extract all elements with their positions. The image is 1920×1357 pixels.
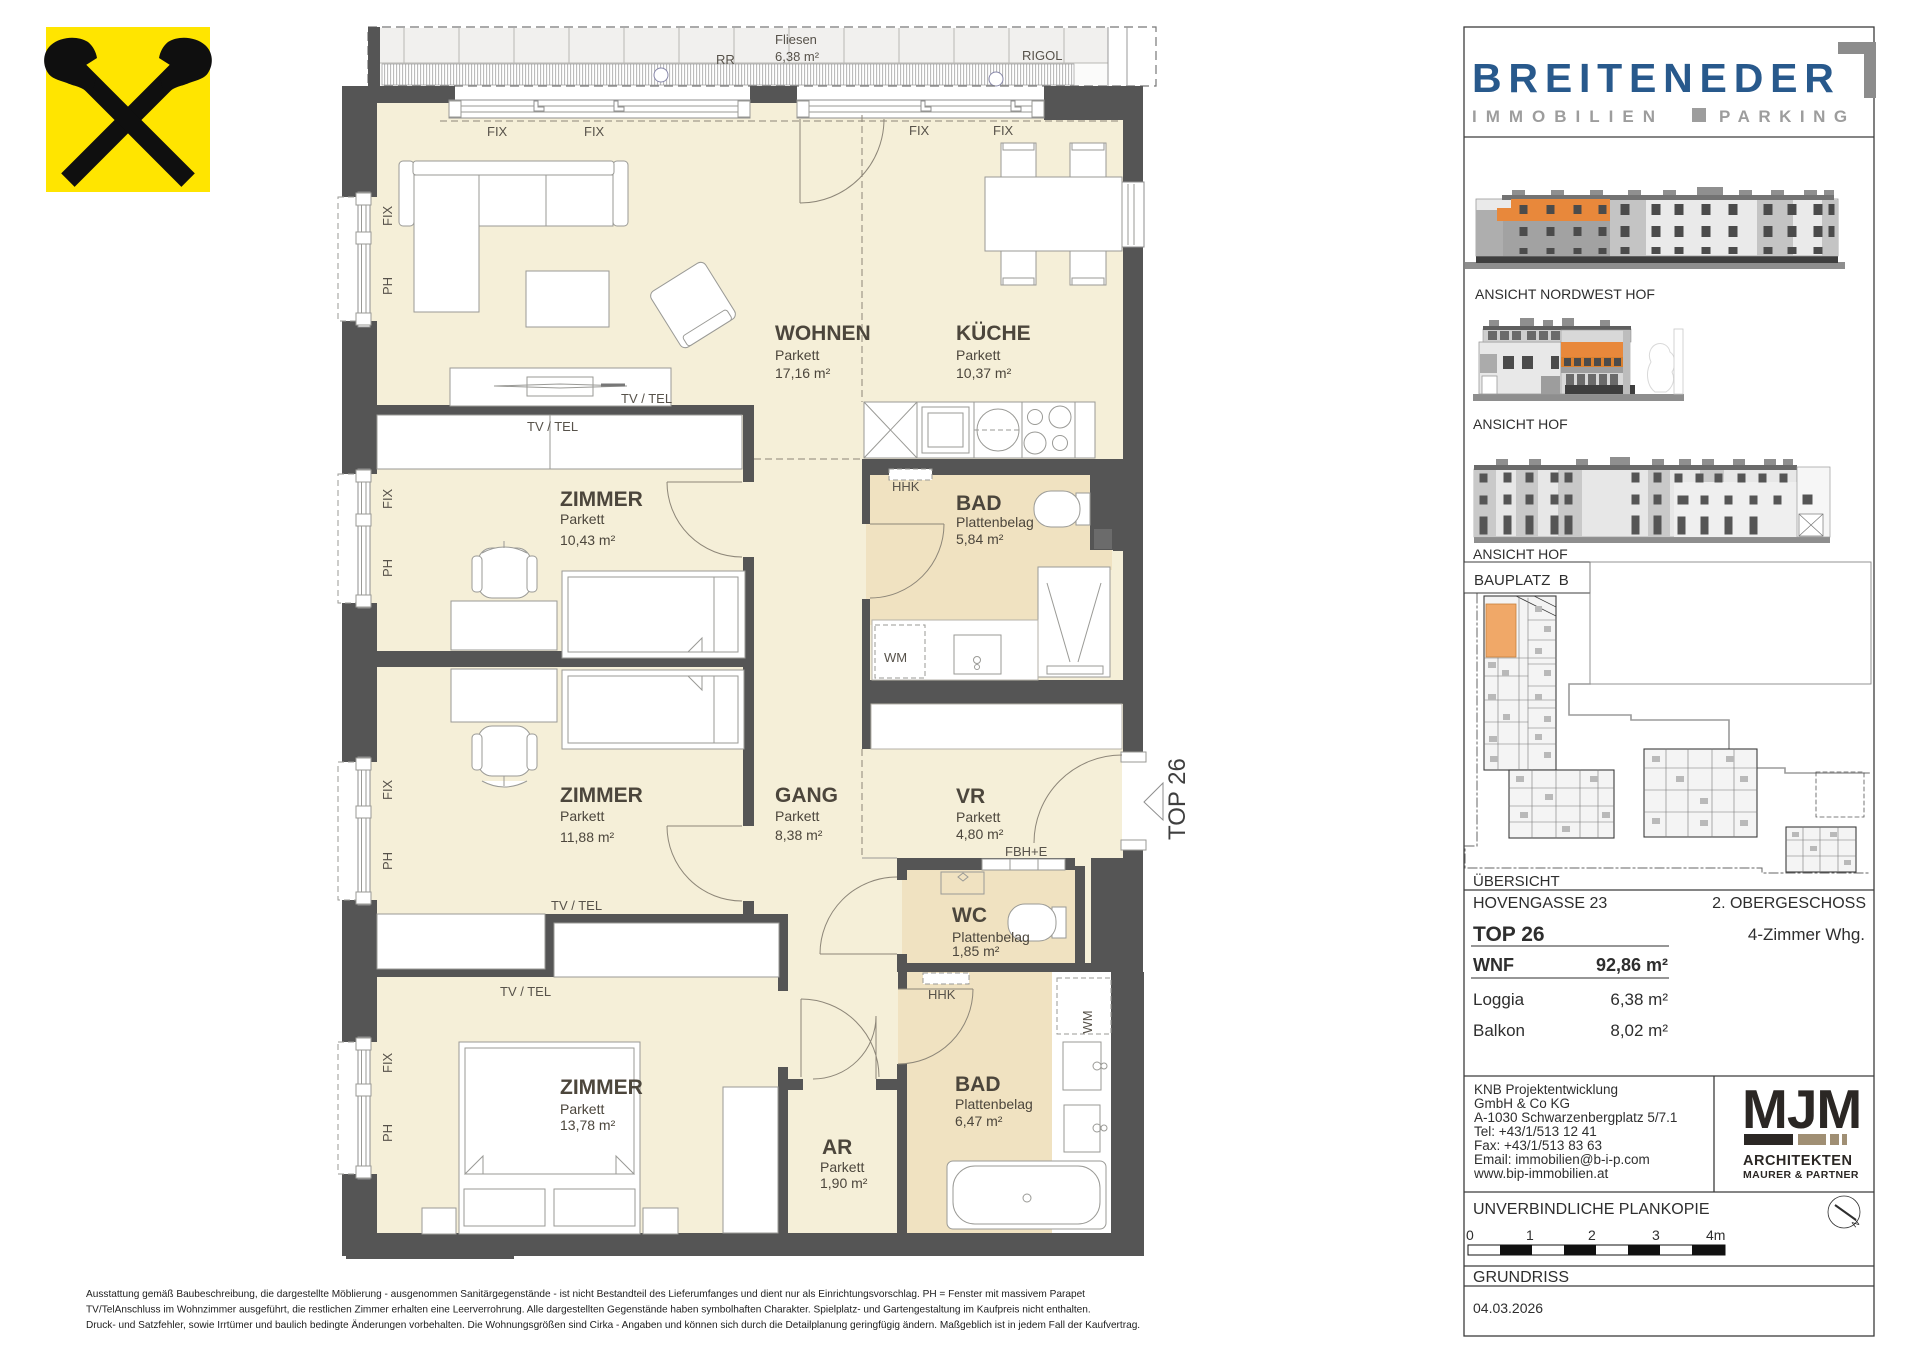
svg-text:MAURER & PARTNER: MAURER & PARTNER xyxy=(1743,1169,1859,1181)
svg-text:WNF: WNF xyxy=(1473,955,1514,975)
svg-text:FIX: FIX xyxy=(909,123,930,138)
svg-text:VR: VR xyxy=(956,785,985,808)
svg-text:13,78 m²: 13,78 m² xyxy=(560,1117,616,1133)
svg-text:GmbH & Co KG: GmbH & Co KG xyxy=(1474,1096,1570,1111)
svg-text:6,47 m²: 6,47 m² xyxy=(955,1113,1003,1129)
svg-text:Loggia: Loggia xyxy=(1473,990,1525,1009)
svg-text:AR: AR xyxy=(822,1136,852,1159)
svg-text:Parkett: Parkett xyxy=(956,347,1000,363)
svg-text:ZIMMER: ZIMMER xyxy=(560,1076,643,1099)
svg-text:KÜCHE: KÜCHE xyxy=(956,322,1031,345)
svg-text:ARCHITEKTEN: ARCHITEKTEN xyxy=(1743,1153,1852,1169)
svg-text:ANSICHT NORDWEST HOF: ANSICHT NORDWEST HOF xyxy=(1475,286,1655,302)
svg-text:10,43 m²: 10,43 m² xyxy=(560,532,616,548)
svg-text:6,38 m²: 6,38 m² xyxy=(1610,990,1668,1009)
svg-text:Ausstattung gemäß Baubeschreib: Ausstattung gemäß Baubeschreibung, die d… xyxy=(86,1289,1085,1300)
svg-text:TV / TEL: TV / TEL xyxy=(551,898,602,913)
svg-text:FIX: FIX xyxy=(380,488,395,509)
svg-text:FIX: FIX xyxy=(380,779,395,800)
svg-text:HOVENGASSE 23: HOVENGASSE 23 xyxy=(1473,895,1607,912)
svg-text:Fax: +43/1/513 83 63: Fax: +43/1/513 83 63 xyxy=(1474,1138,1602,1153)
svg-text:MJM: MJM xyxy=(1742,1078,1861,1140)
svg-text:WM: WM xyxy=(884,650,907,665)
svg-text:PH: PH xyxy=(380,277,395,295)
svg-text:2. OBERGESCHOSS: 2. OBERGESCHOSS xyxy=(1712,895,1866,912)
svg-text:HHK: HHK xyxy=(892,479,920,494)
svg-text:0: 0 xyxy=(1466,1227,1474,1243)
svg-text:FIX: FIX xyxy=(380,1052,395,1073)
svg-text:04.03.2026: 04.03.2026 xyxy=(1473,1300,1543,1316)
svg-text:PH: PH xyxy=(380,1124,395,1142)
svg-text:www.bip-immobilien.at: www.bip-immobilien.at xyxy=(1473,1166,1609,1181)
svg-text:HHK: HHK xyxy=(928,987,956,1002)
svg-text:TV/TelAnschluss im Wohnzimmer: TV/TelAnschluss im Wohnzimmer ausgeführt… xyxy=(86,1305,1091,1316)
svg-text:Parkett: Parkett xyxy=(956,809,1000,825)
svg-text:BREITENEDER: BREITENEDER xyxy=(1472,55,1841,101)
svg-text:Druck- und Satzfehler, sowie I: Druck- und Satzfehler, sowie Irrtümer un… xyxy=(86,1319,1140,1331)
svg-text:UNVERBINDLICHE PLANKOPIE: UNVERBINDLICHE PLANKOPIE xyxy=(1473,1201,1710,1218)
svg-text:FIX: FIX xyxy=(584,124,605,139)
svg-text:TOP 26: TOP 26 xyxy=(1164,758,1191,840)
svg-text:4,80 m²: 4,80 m² xyxy=(956,826,1004,842)
svg-text:Email: immobilien@b-i-p.com: Email: immobilien@b-i-p.com xyxy=(1474,1152,1650,1167)
svg-text:WOHNEN: WOHNEN xyxy=(775,322,871,345)
svg-text:FIX: FIX xyxy=(993,123,1014,138)
svg-text:TV / TEL: TV / TEL xyxy=(621,391,672,406)
svg-text:IMMOBILIEN: IMMOBILIEN xyxy=(1472,107,1664,126)
svg-text:8,38 m²: 8,38 m² xyxy=(775,827,823,843)
svg-text:ANSICHT HOF: ANSICHT HOF xyxy=(1473,416,1568,432)
svg-text:RIGOL: RIGOL xyxy=(1022,48,1062,63)
svg-text:FIX: FIX xyxy=(380,205,395,226)
svg-text:Parkett: Parkett xyxy=(560,808,604,824)
svg-text:KNB Projektentwicklung: KNB Projektentwicklung xyxy=(1474,1082,1618,1097)
svg-text:GANG: GANG xyxy=(775,784,838,807)
svg-text:A-1030 Schwarzenbergplatz 5/7.: A-1030 Schwarzenbergplatz 5/7.1 xyxy=(1474,1110,1677,1125)
svg-text:3: 3 xyxy=(1652,1227,1660,1243)
svg-text:PH: PH xyxy=(380,559,395,577)
svg-text:TOP 26: TOP 26 xyxy=(1473,923,1545,946)
svg-text:Parkett: Parkett xyxy=(560,511,604,527)
svg-text:Plattenbelag: Plattenbelag xyxy=(955,1096,1033,1112)
svg-text:FBH+E: FBH+E xyxy=(1005,844,1048,859)
svg-text:1,85 m²: 1,85 m² xyxy=(952,943,1000,959)
svg-text:17,16 m²: 17,16 m² xyxy=(775,365,831,381)
svg-text:5,84 m²: 5,84 m² xyxy=(956,531,1004,547)
svg-text:11,88 m²: 11,88 m² xyxy=(560,829,615,845)
svg-text:Balkon: Balkon xyxy=(1473,1021,1525,1040)
svg-text:4m: 4m xyxy=(1706,1227,1725,1243)
svg-text:92,86 m²: 92,86 m² xyxy=(1596,955,1668,975)
svg-text:TV / TEL: TV / TEL xyxy=(500,984,551,999)
svg-text:ZIMMER: ZIMMER xyxy=(560,488,643,511)
svg-text:ÜBERSICHT: ÜBERSICHT xyxy=(1473,872,1560,890)
svg-text:Plattenbelag: Plattenbelag xyxy=(956,514,1034,530)
svg-text:BAUPLATZ B: BAUPLATZ B xyxy=(1474,572,1569,589)
svg-text:2: 2 xyxy=(1588,1227,1596,1243)
svg-text:1: 1 xyxy=(1526,1227,1534,1243)
svg-text:Parkett: Parkett xyxy=(775,808,819,824)
svg-text:BAD: BAD xyxy=(955,1073,1001,1096)
svg-text:FIX: FIX xyxy=(487,124,508,139)
svg-text:WM: WM xyxy=(1080,1010,1095,1033)
svg-text:1,90 m²: 1,90 m² xyxy=(820,1175,868,1191)
svg-text:ANSICHT HOF: ANSICHT HOF xyxy=(1473,546,1568,562)
svg-text:TV / TEL: TV / TEL xyxy=(527,419,578,434)
svg-text:4-Zimmer Whg.: 4-Zimmer Whg. xyxy=(1748,925,1865,944)
svg-text:ZIMMER: ZIMMER xyxy=(560,784,643,807)
svg-text:PARKING: PARKING xyxy=(1719,107,1856,126)
svg-text:N: N xyxy=(1850,1218,1861,1230)
svg-text:WC: WC xyxy=(952,904,987,927)
svg-text:RR: RR xyxy=(716,52,735,67)
svg-text:Parkett: Parkett xyxy=(560,1101,604,1117)
svg-text:Tel: +43/1/513 12 41: Tel: +43/1/513 12 41 xyxy=(1474,1124,1597,1139)
svg-text:Parkett: Parkett xyxy=(775,347,819,363)
svg-text:GRUNDRISS: GRUNDRISS xyxy=(1473,1269,1569,1286)
svg-text:10,37 m²: 10,37 m² xyxy=(956,365,1012,381)
svg-text:Fliesen: Fliesen xyxy=(775,32,817,47)
svg-text:6,38 m²: 6,38 m² xyxy=(775,49,820,64)
svg-text:Parkett: Parkett xyxy=(820,1159,864,1175)
svg-text:8,02 m²: 8,02 m² xyxy=(1610,1021,1668,1040)
svg-text:PH: PH xyxy=(380,852,395,870)
svg-text:BAD: BAD xyxy=(956,492,1002,515)
